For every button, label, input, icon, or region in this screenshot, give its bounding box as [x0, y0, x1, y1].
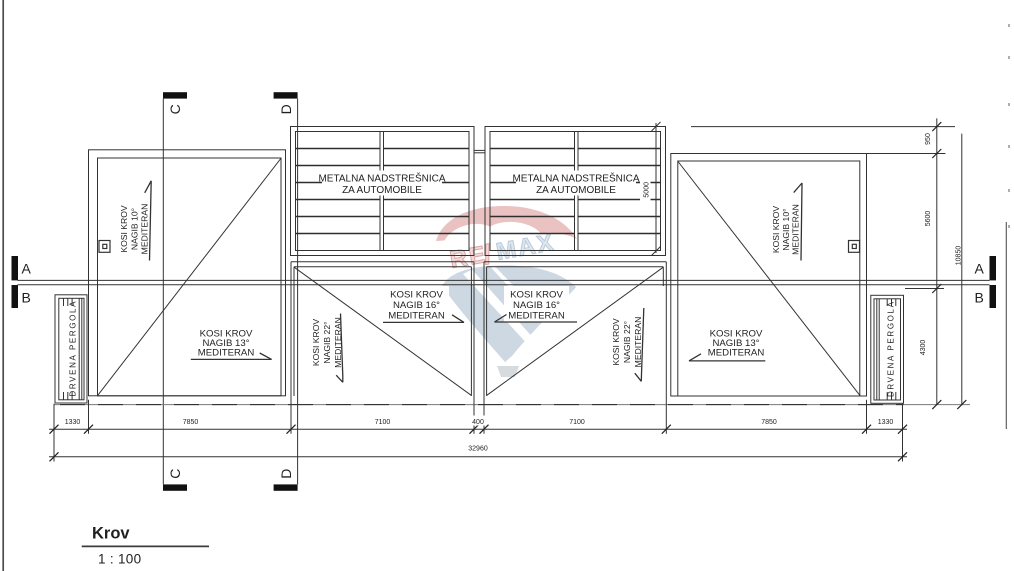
svg-text:5000: 5000 — [644, 182, 651, 198]
svg-text:METALNA NADSTREŠNICA: METALNA NADSTREŠNICA — [318, 171, 445, 184]
svg-text:KOSI KROV: KOSI KROV — [119, 205, 129, 253]
svg-text:ZA AUTOMOBILE: ZA AUTOMOBILE — [342, 185, 422, 196]
svg-text:B: B — [22, 290, 31, 306]
svg-text:950: 950 — [925, 133, 932, 145]
svg-text:D: D — [278, 469, 294, 479]
svg-text:A: A — [22, 261, 32, 277]
svg-text:DRVENA PERGOLA: DRVENA PERGOLA — [887, 301, 896, 397]
svg-text:KOSI KROV: KOSI KROV — [390, 289, 443, 300]
svg-text:NAGIB 16°: NAGIB 16° — [513, 300, 560, 311]
svg-text:MEDITERAN: MEDITERAN — [198, 347, 255, 358]
svg-text:7100: 7100 — [569, 419, 585, 426]
svg-text:Krov: Krov — [92, 525, 130, 543]
svg-text:MEDITERAN: MEDITERAN — [139, 204, 149, 255]
svg-text:B: B — [975, 290, 984, 306]
svg-text:METALNA NADSTREŠNICA: METALNA NADSTREŠNICA — [512, 171, 639, 184]
svg-text:NAGIB 10°: NAGIB 10° — [129, 208, 139, 250]
svg-text:MEDITERAN: MEDITERAN — [708, 347, 765, 358]
svg-text:NAGIB 16°: NAGIB 16° — [393, 300, 440, 311]
svg-text:DRVENA PERGOLA: DRVENA PERGOLA — [69, 301, 78, 397]
svg-text:400: 400 — [472, 419, 484, 426]
svg-text:D: D — [278, 104, 294, 114]
svg-text:7850: 7850 — [183, 419, 199, 426]
svg-text:KOSI KROV: KOSI KROV — [611, 318, 621, 366]
svg-text:ZA AUTOMOBILE: ZA AUTOMOBILE — [536, 185, 616, 196]
svg-text:7100: 7100 — [375, 419, 391, 426]
svg-text:MEDITERAN: MEDITERAN — [388, 311, 445, 322]
svg-text:C: C — [167, 469, 183, 479]
svg-text:NAGIB 22°: NAGIB 22° — [622, 321, 632, 363]
svg-text:MEDITERAN: MEDITERAN — [791, 204, 801, 255]
svg-text:1 : 100: 1 : 100 — [98, 552, 141, 567]
svg-text:C: C — [167, 104, 183, 114]
svg-text:MEDITERAN: MEDITERAN — [508, 311, 565, 322]
svg-text:10850: 10850 — [956, 246, 963, 266]
svg-text:A: A — [975, 261, 985, 277]
svg-text:1330: 1330 — [65, 419, 81, 426]
svg-text:7850: 7850 — [761, 419, 777, 426]
svg-text:4300: 4300 — [920, 340, 927, 356]
svg-text:KOSI KROV: KOSI KROV — [311, 319, 321, 367]
svg-text:32960: 32960 — [468, 446, 488, 453]
svg-text:KOSI KROV: KOSI KROV — [510, 289, 563, 300]
svg-text:5600: 5600 — [925, 211, 932, 227]
svg-text:NAGIB 22°: NAGIB 22° — [322, 321, 332, 363]
svg-text:MAX: MAX — [494, 229, 557, 266]
svg-text:1330: 1330 — [878, 419, 894, 426]
svg-text:KOSI KROV: KOSI KROV — [771, 206, 781, 254]
